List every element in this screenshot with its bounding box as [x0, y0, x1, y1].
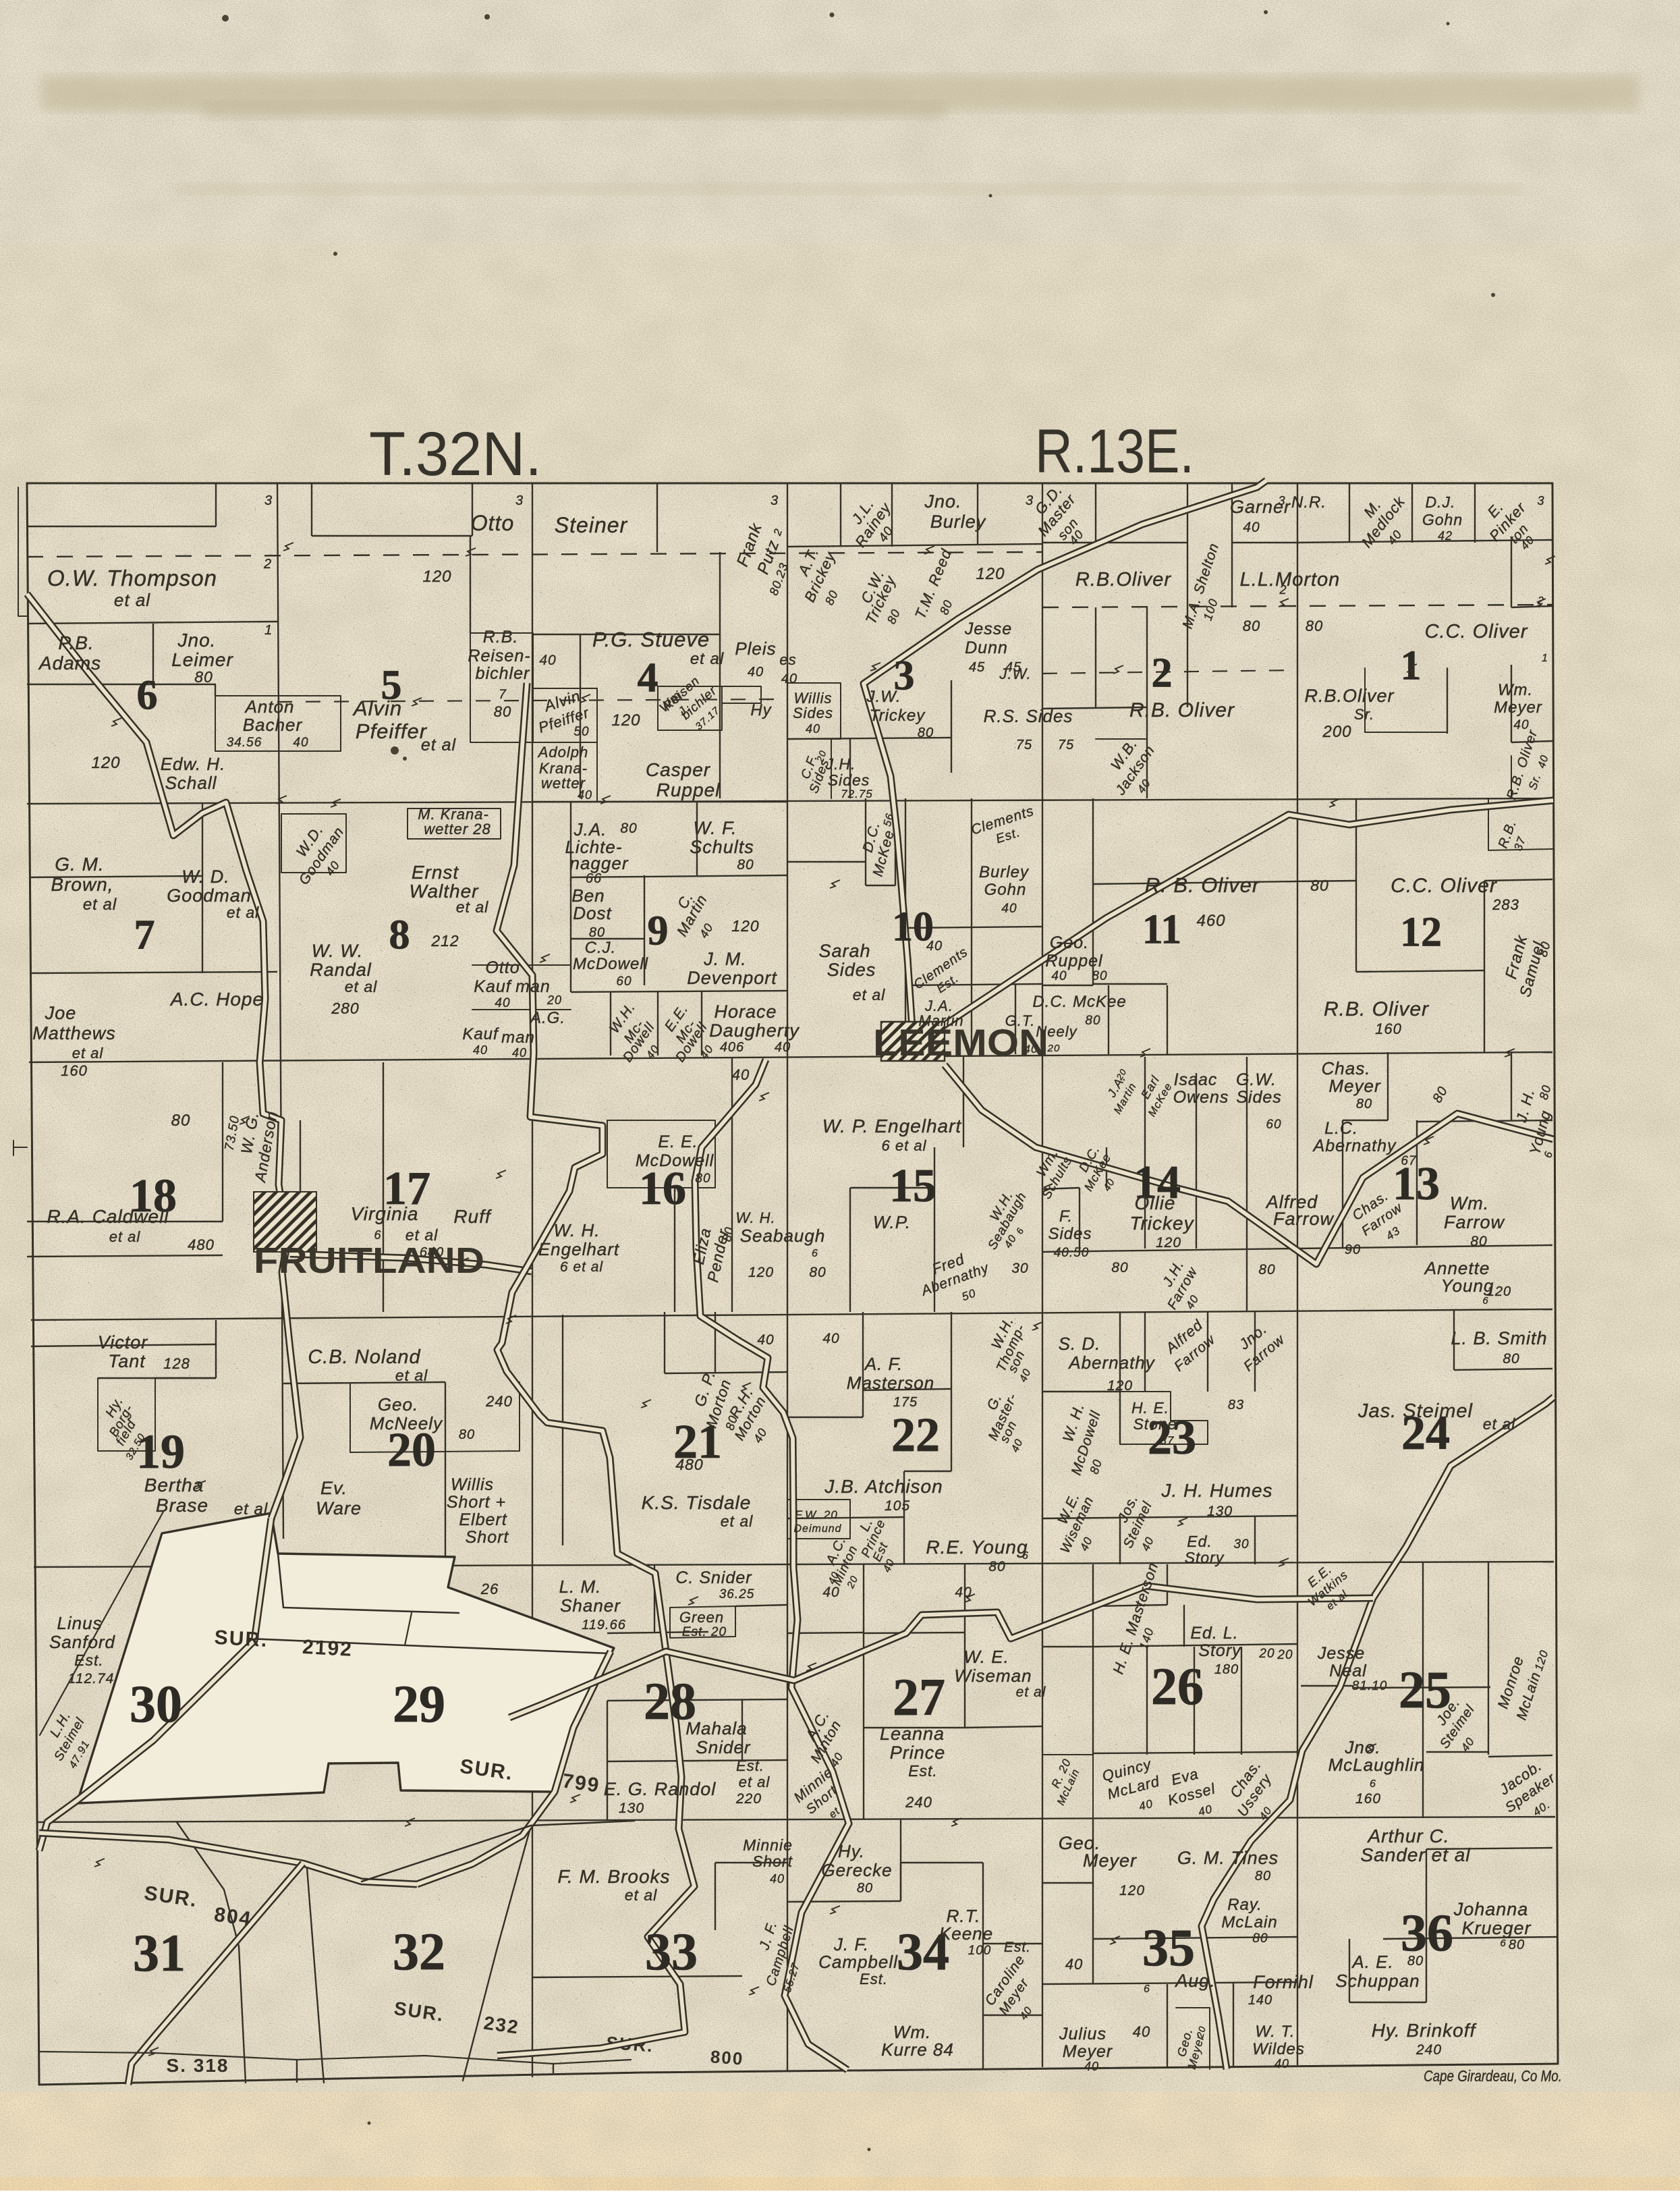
svg-text:et al: et al: [395, 1367, 428, 1384]
svg-text:et al: et al: [405, 1226, 438, 1244]
svg-text:6: 6: [1022, 1550, 1029, 1562]
svg-text:Otto: Otto: [485, 958, 520, 977]
svg-text:bichler: bichler: [476, 664, 530, 683]
svg-text:40: 40: [1051, 969, 1067, 983]
svg-text:175: 175: [893, 1395, 918, 1410]
svg-text:80: 80: [1111, 1260, 1128, 1276]
svg-text:27: 27: [893, 1668, 945, 1726]
svg-text:40: 40: [512, 1046, 527, 1060]
svg-text:Est.: Est.: [908, 1762, 938, 1780]
svg-text:283: 283: [1492, 896, 1519, 913]
svg-text:C.J.: C.J.: [585, 939, 617, 957]
svg-text:120: 120: [976, 565, 1005, 583]
svg-text:Edw. H.: Edw. H.: [161, 754, 226, 774]
svg-text:et al: et al: [72, 1045, 104, 1062]
svg-text:Est.: Est.: [860, 1971, 888, 1987]
svg-text:20: 20: [547, 993, 562, 1007]
svg-text:SUR.: SUR.: [214, 1626, 269, 1651]
svg-text:6: 6: [1482, 1295, 1488, 1307]
svg-text:80: 80: [1092, 969, 1107, 983]
svg-text:R.S. Sides: R.S. Sides: [984, 706, 1073, 726]
svg-text:F.: F.: [1059, 1207, 1073, 1226]
svg-text:80: 80: [194, 668, 213, 686]
svg-text:Ray.: Ray.: [1227, 1896, 1262, 1914]
svg-text:W.P.: W.P.: [873, 1212, 911, 1232]
svg-text:Casper: Casper: [646, 759, 711, 780]
svg-text:19: 19: [136, 1425, 185, 1479]
svg-text:Jno.: Jno.: [924, 491, 961, 512]
svg-text:Owens: Owens: [1173, 1088, 1229, 1107]
svg-text:Sanford: Sanford: [49, 1632, 116, 1652]
svg-text:Krueger: Krueger: [1461, 1918, 1531, 1938]
svg-text:80: 80: [1252, 1931, 1268, 1946]
svg-text:6: 6: [374, 1228, 381, 1242]
svg-text:P.B.: P.B.: [58, 632, 94, 653]
svg-text:240: 240: [485, 1393, 513, 1410]
svg-text:40: 40: [495, 996, 510, 1010]
svg-text:Arthur C.: Arthur C.: [1366, 1826, 1449, 1846]
svg-text:et al: et al: [114, 590, 150, 610]
svg-text:40: 40: [757, 1332, 774, 1348]
svg-text:Wildes: Wildes: [1252, 2040, 1305, 2058]
svg-text:80: 80: [1509, 1938, 1525, 1952]
svg-text:Gerecke: Gerecke: [821, 1860, 892, 1880]
svg-text:C.C. Oliver: C.C. Oliver: [1425, 621, 1528, 642]
svg-text:Sides: Sides: [793, 705, 833, 721]
svg-text:212: 212: [430, 932, 459, 950]
svg-text:Otto: Otto: [471, 511, 514, 535]
svg-text:240: 240: [905, 1794, 932, 1811]
svg-text:81.10: 81.10: [1352, 1679, 1388, 1693]
svg-text:L. B. Smith: L. B. Smith: [1451, 1328, 1547, 1348]
svg-text:480: 480: [188, 1236, 215, 1253]
svg-text:50: 50: [573, 725, 589, 739]
svg-text:Geo.: Geo.: [1050, 933, 1089, 952]
svg-text:112.74: 112.74: [68, 1671, 115, 1686]
svg-text:Ruppel: Ruppel: [656, 779, 721, 800]
svg-text:Sr.: Sr.: [1354, 706, 1374, 723]
svg-text:130: 130: [619, 1801, 644, 1816]
svg-text:Keene: Keene: [939, 1923, 993, 1944]
svg-text:6: 6: [1144, 1983, 1150, 1995]
svg-text:C.B. Noland: C.B. Noland: [308, 1346, 420, 1368]
svg-text:C.C. Oliver: C.C. Oliver: [1391, 875, 1497, 897]
svg-text:120: 120: [748, 1265, 774, 1280]
svg-text:McNeely: McNeely: [370, 1413, 443, 1433]
svg-text:75: 75: [1016, 738, 1032, 752]
svg-text:Fornihl: Fornihl: [1253, 1972, 1314, 1992]
svg-text:36.25: 36.25: [719, 1587, 755, 1601]
svg-text:16: 16: [639, 1163, 686, 1215]
svg-text:80: 80: [918, 725, 934, 740]
svg-text:Steiner: Steiner: [555, 513, 628, 537]
svg-text:Farrow: Farrow: [1273, 1209, 1335, 1229]
svg-text:Trickey: Trickey: [870, 707, 926, 725]
svg-text:R.B.Oliver: R.B.Oliver: [1304, 686, 1394, 706]
svg-text:Engelhart: Engelhart: [538, 1239, 620, 1259]
svg-text:80: 80: [1243, 618, 1260, 634]
svg-text:Meyer: Meyer: [1494, 698, 1542, 717]
svg-text:Alvin: Alvin: [352, 696, 402, 720]
svg-text:40: 40: [1243, 520, 1260, 535]
svg-text:60: 60: [1266, 1118, 1281, 1132]
svg-text:Devenport: Devenport: [687, 968, 777, 988]
svg-text:80: 80: [1085, 1014, 1100, 1028]
svg-text:29: 29: [393, 1674, 445, 1733]
svg-text:G.W.: G.W.: [1236, 1070, 1277, 1089]
svg-text:80: 80: [171, 1112, 191, 1130]
svg-text:et al: et al: [234, 1500, 268, 1518]
svg-text:R.13E.: R.13E.: [1035, 417, 1194, 486]
svg-text:Sarah: Sarah: [818, 941, 870, 961]
svg-text:J. M.: J. M.: [703, 949, 747, 969]
svg-text:Brase: Brase: [156, 1495, 208, 1516]
svg-text:Est.: Est.: [74, 1651, 104, 1669]
svg-text:30: 30: [1233, 1537, 1249, 1552]
svg-text:40: 40: [781, 671, 797, 686]
svg-text:Kauf: Kauf: [474, 977, 512, 996]
svg-text:40: 40: [926, 939, 943, 954]
svg-text:Story: Story: [1198, 1641, 1241, 1660]
svg-text:6 et al: 6 et al: [560, 1259, 604, 1275]
svg-text:40: 40: [1001, 902, 1017, 916]
svg-text:et al: et al: [690, 650, 724, 668]
svg-text:22: 22: [891, 1408, 940, 1462]
svg-text:Gohn: Gohn: [1422, 511, 1463, 528]
svg-text:Horace: Horace: [714, 1002, 777, 1022]
svg-text:Schall: Schall: [165, 773, 217, 793]
svg-text:Reisen-: Reisen-: [468, 647, 530, 665]
svg-text:42: 42: [1438, 529, 1453, 543]
svg-text:K.S. Tisdale: K.S. Tisdale: [642, 1492, 752, 1513]
svg-text:W. W.: W. W.: [312, 941, 363, 961]
svg-text:Anton: Anton: [244, 696, 295, 717]
svg-text:75: 75: [1058, 738, 1074, 752]
svg-text:80: 80: [857, 1881, 873, 1896]
svg-text:D.C. McKee: D.C. McKee: [1032, 993, 1126, 1011]
svg-text:20: 20: [1277, 1648, 1293, 1662]
svg-text:160: 160: [1375, 1020, 1402, 1037]
svg-text:67: 67: [1401, 1154, 1417, 1168]
svg-text:7: 7: [134, 912, 155, 958]
svg-text:D.J.: D.J.: [1426, 493, 1456, 511]
svg-text:L. M.: L. M.: [559, 1576, 602, 1597]
svg-text:J.B. Atchison: J.B. Atchison: [824, 1476, 943, 1497]
svg-text:A.G.: A.G.: [529, 1009, 565, 1027]
svg-text:et al: et al: [1483, 1415, 1515, 1433]
svg-text:Seabaugh: Seabaugh: [740, 1226, 826, 1246]
svg-text:Dunn: Dunn: [965, 638, 1008, 657]
svg-text:11: 11: [1142, 906, 1182, 952]
svg-text:Green: Green: [679, 1609, 724, 1626]
svg-text:Virginia: Virginia: [351, 1203, 419, 1224]
svg-text:Wm.: Wm.: [1498, 681, 1533, 699]
svg-text:45: 45: [1005, 660, 1021, 675]
svg-text:Victor: Victor: [98, 1332, 148, 1352]
svg-text:Isaac: Isaac: [1174, 1070, 1218, 1089]
svg-text:et al: et al: [421, 736, 457, 755]
svg-text:30: 30: [1011, 1261, 1028, 1276]
svg-text:Jas. Steimel: Jas. Steimel: [1357, 1400, 1473, 1422]
svg-text:Meyer: Meyer: [1083, 1850, 1137, 1871]
svg-text:Kauf: Kauf: [462, 1025, 499, 1043]
svg-text:6: 6: [1370, 1778, 1376, 1790]
svg-text:3: 3: [1026, 493, 1034, 508]
svg-text:G. M.: G. M.: [55, 854, 104, 875]
svg-text:66: 66: [586, 871, 602, 886]
svg-text:1: 1: [264, 623, 273, 638]
svg-text:Daugherty: Daugherty: [709, 1020, 800, 1041]
svg-text:Bacher: Bacher: [243, 715, 303, 735]
svg-text:McDowell: McDowell: [636, 1151, 715, 1170]
svg-text:Short: Short: [466, 1528, 509, 1547]
svg-text:Julius: Julius: [1059, 2025, 1107, 2044]
svg-text:P.G. Stueve: P.G. Stueve: [592, 628, 710, 651]
svg-text:N.R.: N.R.: [1291, 493, 1326, 512]
svg-text:Geo.: Geo.: [378, 1394, 418, 1415]
svg-text:et al: et al: [345, 978, 377, 995]
svg-text:9: 9: [648, 908, 669, 954]
svg-text:Jesse: Jesse: [964, 620, 1012, 638]
svg-text:2: 2: [1279, 583, 1287, 597]
svg-text:Dost: Dost: [573, 903, 612, 923]
svg-text:R.E. Young: R.E. Young: [926, 1537, 1028, 1558]
svg-text:6: 6: [137, 672, 158, 718]
svg-text:Cape Girardeau, Co Mo.: Cape Girardeau, Co Mo.: [1424, 2067, 1562, 2085]
svg-text:3: 3: [771, 493, 779, 508]
svg-text:8: 8: [389, 912, 410, 958]
svg-text:Prince: Prince: [890, 1743, 946, 1763]
svg-text:W. H.: W. H.: [735, 1209, 775, 1226]
svg-text:90: 90: [1345, 1242, 1361, 1257]
svg-text:80: 80: [459, 1427, 475, 1442]
svg-text:Deimund: Deimund: [793, 1523, 841, 1535]
svg-text:80: 80: [1310, 877, 1329, 894]
svg-text:60: 60: [616, 975, 632, 989]
svg-text:200: 200: [1322, 723, 1351, 741]
svg-text:McLain: McLain: [1221, 1913, 1277, 1931]
svg-text:40: 40: [770, 1872, 785, 1886]
svg-text:130: 130: [1207, 1504, 1233, 1519]
svg-text:et al: et al: [109, 1228, 141, 1245]
svg-text:40: 40: [1084, 2060, 1099, 2073]
svg-text:S. 318: S. 318: [167, 2055, 229, 2076]
svg-text:FRUITLAND: FRUITLAND: [254, 1240, 484, 1281]
svg-text:40: 40: [1133, 2023, 1150, 2040]
svg-text:R.B.Oliver: R.B.Oliver: [1075, 569, 1171, 591]
svg-text:80: 80: [620, 821, 637, 836]
svg-text:Brown,: Brown,: [51, 874, 113, 895]
svg-text:Masterson: Masterson: [847, 1373, 934, 1393]
svg-text:80: 80: [1255, 1869, 1271, 1884]
svg-text:32: 32: [393, 1922, 445, 1981]
svg-text:Est.: Est.: [736, 1757, 764, 1774]
svg-text:120: 120: [422, 568, 451, 586]
svg-text:6 et al: 6 et al: [882, 1137, 927, 1154]
svg-text:40: 40: [1065, 1956, 1083, 1973]
svg-text:37: 37: [1160, 1434, 1175, 1447]
svg-text:Martin: Martin: [918, 1012, 963, 1029]
svg-text:406: 406: [720, 1040, 744, 1055]
svg-text:100: 100: [968, 1944, 992, 1958]
svg-text:Shaner: Shaner: [560, 1595, 621, 1616]
svg-text:T.32N.: T.32N.: [369, 420, 542, 489]
svg-text:120: 120: [611, 711, 640, 730]
svg-text:E. E.: E. E.: [658, 1132, 698, 1151]
svg-text:128: 128: [163, 1355, 190, 1372]
svg-text:2192: 2192: [302, 1636, 353, 1661]
svg-text:E. G. Randol: E. G. Randol: [604, 1779, 717, 1799]
svg-text:3: 3: [1278, 494, 1285, 508]
svg-text:Ruppel: Ruppel: [1045, 952, 1103, 970]
svg-text:120: 120: [731, 917, 759, 935]
svg-text:1: 1: [1401, 642, 1422, 688]
svg-text:26: 26: [480, 1581, 499, 1597]
svg-text:80: 80: [1306, 618, 1323, 634]
svg-text:Elbert: Elbert: [459, 1510, 507, 1529]
svg-text:Meyer: Meyer: [1328, 1076, 1381, 1096]
svg-text:Schults: Schults: [690, 837, 754, 857]
svg-text:180: 180: [1214, 1662, 1239, 1677]
svg-text:640: 640: [420, 1245, 444, 1260]
svg-text:Jno.: Jno.: [177, 630, 217, 651]
svg-text:Sander et al: Sander et al: [1361, 1844, 1471, 1865]
svg-text:C. Snider: C. Snider: [675, 1568, 752, 1587]
svg-text:Gohn: Gohn: [984, 881, 1027, 899]
svg-text:40: 40: [955, 1585, 972, 1600]
svg-text:man: man: [515, 977, 551, 996]
svg-text:R. B. Oliver: R. B. Oliver: [1145, 873, 1260, 897]
svg-text:Ed. L.: Ed. L.: [1190, 1624, 1238, 1643]
svg-text:80: 80: [809, 1265, 826, 1280]
svg-text:McLaughlin: McLaughlin: [1328, 1755, 1425, 1775]
svg-text:Pfeiffer: Pfeiffer: [356, 719, 428, 743]
svg-text:72.75: 72.75: [841, 788, 873, 800]
svg-text:40: 40: [293, 736, 308, 750]
svg-text:40.50: 40.50: [1054, 1246, 1090, 1260]
svg-text:Randal: Randal: [310, 960, 372, 980]
svg-text:Leanna: Leanna: [880, 1724, 945, 1744]
svg-text:Joe: Joe: [45, 1003, 77, 1023]
svg-text:30: 30: [130, 1674, 182, 1733]
svg-text:Meyer: Meyer: [1063, 2042, 1113, 2061]
svg-text:Ruff: Ruff: [453, 1206, 493, 1227]
svg-text:15: 15: [889, 1160, 936, 1212]
svg-text:Matthews: Matthews: [32, 1023, 116, 1043]
svg-text:80: 80: [1258, 1262, 1275, 1278]
svg-text:Bertha: Bertha: [144, 1475, 204, 1496]
svg-text:L.L.Morton: L.L.Morton: [1240, 569, 1341, 591]
svg-text:A.C. Hope: A.C. Hope: [169, 989, 264, 1010]
svg-text:es: es: [779, 651, 796, 668]
svg-text:2: 2: [1152, 650, 1173, 696]
svg-text:Neely: Neely: [1036, 1023, 1077, 1040]
svg-text:83: 83: [1228, 1398, 1244, 1413]
svg-text:Sides: Sides: [827, 960, 876, 980]
svg-text:wetter 28: wetter 28: [424, 821, 491, 838]
svg-text:Sides: Sides: [1048, 1225, 1092, 1243]
svg-text:80: 80: [1503, 1351, 1519, 1367]
svg-text:Hy.: Hy.: [838, 1841, 865, 1861]
svg-text:et al: et al: [739, 1774, 771, 1790]
svg-text:Minnie: Minnie: [743, 1836, 793, 1854]
svg-text:G. M. Tines: G. M. Tines: [1177, 1848, 1279, 1868]
svg-text:80: 80: [589, 925, 605, 940]
svg-text:Adolph: Adolph: [537, 744, 589, 761]
svg-text:et al: et al: [227, 904, 259, 921]
svg-text:Story: Story: [1185, 1549, 1225, 1566]
svg-text:L.C.: L.C.: [1324, 1119, 1358, 1138]
svg-text:Abernathy: Abernathy: [1067, 1352, 1156, 1373]
svg-text:R.A. Caldwell: R.A. Caldwell: [47, 1206, 169, 1227]
svg-text:W. H.: W. H.: [553, 1220, 600, 1240]
svg-text:34.56: 34.56: [227, 736, 262, 750]
svg-text:R.B. Oliver: R.B. Oliver: [1324, 998, 1429, 1020]
svg-text:240: 240: [1416, 2042, 1442, 2058]
svg-text:40: 40: [539, 653, 556, 668]
svg-text:40: 40: [748, 665, 764, 680]
svg-text:80: 80: [494, 703, 511, 720]
svg-text:et al: et al: [83, 896, 117, 914]
svg-text:Sides: Sides: [1236, 1088, 1282, 1107]
svg-text:12: 12: [1400, 909, 1442, 955]
svg-text:Goodman: Goodman: [167, 885, 252, 906]
svg-text:460: 460: [1196, 912, 1225, 930]
svg-text:105: 105: [885, 1498, 910, 1514]
svg-text:et al: et al: [1016, 1684, 1046, 1700]
svg-text:Hy: Hy: [750, 701, 772, 719]
svg-text:Trickey: Trickey: [1129, 1213, 1194, 1234]
svg-text:800: 800: [710, 2046, 744, 2068]
svg-text:Leimer: Leimer: [171, 649, 233, 670]
svg-text:40: 40: [732, 1066, 750, 1083]
svg-text:J.H.: J.H.: [825, 755, 856, 773]
svg-text:20: 20: [1258, 1647, 1275, 1661]
svg-text:Young: Young: [1441, 1276, 1494, 1296]
svg-text:40: 40: [822, 1585, 839, 1600]
svg-text:W. E.: W. E.: [963, 1647, 1009, 1667]
svg-text:3: 3: [1537, 494, 1544, 508]
svg-text:Willis: Willis: [451, 1475, 494, 1494]
svg-text:Sides: Sides: [828, 771, 870, 789]
svg-text:Aug.: Aug.: [1174, 1971, 1216, 1991]
svg-text:Neal: Neal: [1329, 1662, 1367, 1680]
svg-text:80: 80: [695, 1172, 710, 1186]
svg-text:20: 20: [1047, 1043, 1061, 1054]
svg-text:160: 160: [61, 1062, 88, 1079]
svg-text:A. F.: A. F.: [864, 1354, 903, 1374]
svg-text:80: 80: [737, 857, 754, 873]
svg-text:120: 120: [1119, 1883, 1145, 1898]
svg-text:6: 6: [812, 1248, 818, 1259]
svg-text:3: 3: [264, 493, 273, 508]
svg-text:Campbell: Campbell: [818, 1952, 898, 1972]
svg-text:Kurre 84: Kurre 84: [881, 2039, 954, 2060]
svg-text:Abernathy: Abernathy: [1312, 1136, 1397, 1155]
svg-text:3: 3: [515, 493, 524, 508]
svg-text:J.W.: J.W.: [866, 688, 901, 706]
svg-text:Ernst: Ernst: [412, 862, 459, 883]
svg-text:Adams: Adams: [38, 653, 101, 674]
svg-text:Ware: Ware: [316, 1498, 362, 1518]
svg-text:R.B.: R.B.: [483, 628, 519, 647]
svg-text:W. T.: W. T.: [1255, 2023, 1295, 2041]
svg-text:Wm.: Wm.: [1450, 1193, 1489, 1213]
svg-text:Farrow: Farrow: [1444, 1212, 1505, 1232]
svg-text:W. F.: W. F.: [694, 818, 737, 838]
svg-text:Est.: Est.: [1004, 1940, 1031, 1955]
svg-text:et al: et al: [456, 898, 488, 916]
